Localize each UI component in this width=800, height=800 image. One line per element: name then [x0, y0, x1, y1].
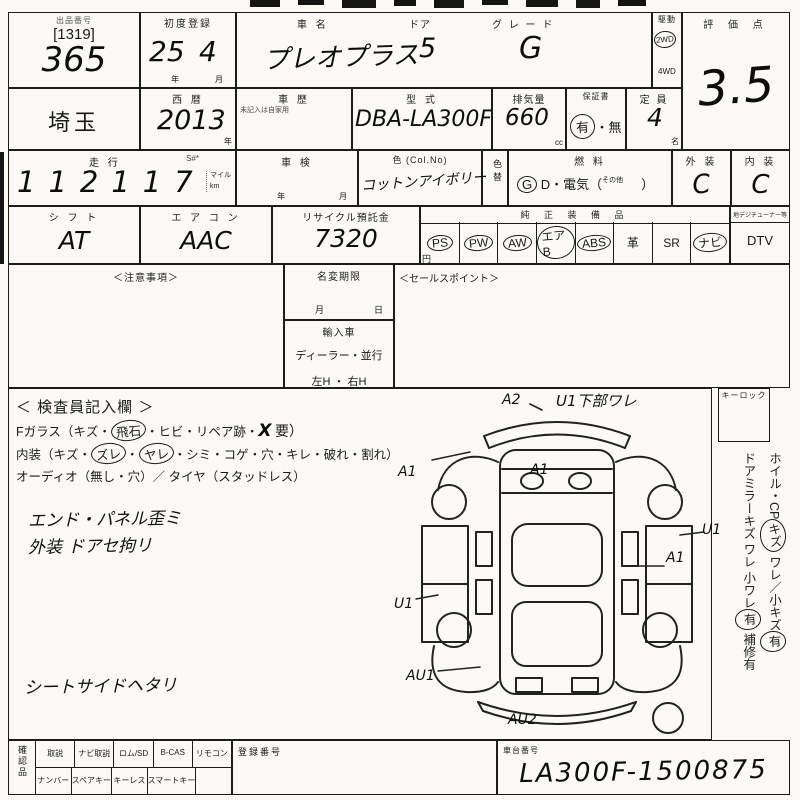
- caution-box: ＜注意事項＞: [8, 264, 284, 388]
- car-body: [500, 450, 614, 694]
- aircon-label: エ ア コ ン: [141, 209, 271, 224]
- annotation-au2-rear: AU2: [508, 712, 537, 728]
- dtv-header: 地デジチューナー等: [731, 210, 789, 219]
- year-label: 西 暦: [141, 91, 235, 106]
- drive-4wd: 4WD: [658, 67, 676, 76]
- drive-box: 駆動 2WD 4WD: [652, 12, 682, 88]
- first-registration-box: 初度登録 25 4 年 月: [140, 12, 236, 88]
- fglass-p2: ・ヒビ・リペア跡・: [146, 425, 259, 439]
- displacement-value: 660: [505, 105, 549, 131]
- capacity-box: 定 員 4 名: [626, 88, 682, 150]
- aircon-box: エ ア コ ン AAC: [140, 206, 272, 264]
- door-value: 5: [419, 33, 436, 64]
- side-circled-ari2: 有: [734, 608, 761, 631]
- grade-label: グ レ ー ド: [492, 16, 554, 31]
- name-change-box: 名変期限 月 日: [284, 264, 394, 320]
- door-label: ドア: [409, 16, 431, 31]
- lot-box: 出品番号 [1319] 365: [8, 12, 140, 88]
- drive-label: 駆動: [653, 14, 681, 25]
- annotation-leader-lines: [416, 404, 704, 671]
- shaken-label: 車 検: [237, 154, 357, 169]
- warranty-label: 保証書: [567, 91, 625, 102]
- displacement-box: 排気量 660 cc: [492, 88, 566, 150]
- equipment-cell-aw: AW: [497, 222, 536, 263]
- side-p4: 補修有: [741, 629, 755, 670]
- side-circled-ari1: 有: [759, 630, 786, 653]
- dtv-value: DTV: [731, 233, 789, 248]
- car-name-box: 車 名 ドア グ レ ー ド プレオプラス 5 G: [236, 12, 652, 88]
- fuel-label: 燃 料: [509, 153, 671, 168]
- wheel-note-line: ホイル・CPキズ ワレ／小キズ有: [760, 452, 786, 740]
- confirm-empty: [195, 768, 231, 795]
- year-value: 2013: [157, 105, 226, 136]
- equipment-abs: ABS: [577, 233, 612, 252]
- shaken-year-unit: 年: [277, 191, 285, 202]
- equipment-ps: PS: [426, 233, 453, 251]
- exterior-label: 外 装: [673, 153, 730, 168]
- history-box: 車 歴 未記入は自家用: [236, 88, 352, 150]
- mileage-units: マイル km: [206, 171, 231, 192]
- sales-point-box: ＜セールスポイント＞: [394, 264, 790, 388]
- keylock-label: キーロック: [719, 390, 769, 401]
- interior-circled-zure: ズレ: [90, 442, 127, 466]
- color-value: コットンアイボリー: [360, 167, 486, 196]
- car-name-label: 車 名: [297, 16, 329, 31]
- interior-p3: ・シミ・コゲ・穴・キレ・破れ・割れ）: [174, 448, 399, 462]
- mileage-unit-mile: マイル: [210, 172, 231, 179]
- region-value: 埼玉: [9, 105, 139, 137]
- drive-2wd: 2WD: [653, 30, 676, 49]
- confirm-bcas: B-CAS: [153, 741, 192, 767]
- annotation-a1-right-door: A1: [666, 550, 684, 566]
- region-box: 埼玉: [8, 88, 140, 150]
- annotation-a2-front: A2: [502, 392, 520, 408]
- import-type: ディーラー・並行: [285, 347, 393, 363]
- capacity-unit: 名: [671, 136, 679, 147]
- equipment-aw: AW: [502, 233, 532, 251]
- shift-value: AT: [9, 226, 139, 255]
- side-circled-kizu: キズ: [759, 518, 788, 553]
- displacement-unit: cc: [555, 138, 563, 147]
- right-side-panels: [616, 457, 692, 692]
- equipment-navi: ナビ: [692, 232, 728, 254]
- warranty-box: 保証書 有・無: [566, 88, 626, 150]
- annotation-a1-left-fender: A1: [398, 464, 416, 480]
- score-label: 評 価 点: [683, 16, 789, 31]
- equipment-cell-pw: PW: [459, 222, 498, 263]
- recycle-box: リサイクル預託金 7320 円: [272, 206, 420, 264]
- shaken-month-unit: 月: [339, 191, 347, 202]
- annotation-u1-crack: U1下部ワレ: [556, 390, 637, 411]
- lot-label: 出品番号: [9, 15, 139, 26]
- confirm-keyless: キーレス: [111, 768, 147, 795]
- scan-artifact: [0, 152, 4, 264]
- left-side-panels: [422, 457, 498, 692]
- history-label: 車 歴: [237, 91, 351, 106]
- name-change-day: 日: [374, 303, 383, 316]
- confirm-navi-torisetsu: ナビ取説: [74, 741, 113, 767]
- confirm-spare-key: スペアキー: [71, 768, 111, 795]
- model-box: 型 式 DBA-LA300F: [352, 88, 492, 150]
- keylock-box: キーロック: [718, 388, 770, 442]
- wheel-mirror-note: ホイル・CPキズ ワレ／小キズ有 ドアミラーキズ ワレ 小ワレ有 補修有: [722, 452, 786, 740]
- wheel-front-left: [432, 485, 466, 519]
- equipment-cell-sr: SR: [652, 222, 691, 263]
- name-change-label: 名変期限: [285, 268, 393, 283]
- shift-box: シ フ ト AT: [8, 206, 140, 264]
- equipment-airbag: エアB: [536, 224, 576, 260]
- fglass-x-mark: X: [258, 421, 271, 441]
- displacement-label: 排気量: [493, 91, 565, 106]
- exterior-box: 外 装 C: [672, 150, 731, 206]
- fglass-line: Fガラス（キズ・飛石・ヒビ・リペア跡・X 要）: [16, 420, 303, 441]
- handnote-end-panel: エンド・パネル歪ミ: [28, 504, 181, 532]
- hood-detail-right: [569, 473, 591, 489]
- color-label: 色 (Col.No): [359, 153, 481, 166]
- warranty-no: 無: [609, 120, 622, 135]
- score-box: 評 価 点 3.5: [682, 12, 790, 150]
- fuel-rest2: ）: [623, 177, 654, 192]
- lot-number: 365: [9, 43, 139, 77]
- audio-line: オーディオ（無し・穴）／ タイヤ（スタッドレス）: [16, 466, 306, 485]
- model-label: 型 式: [353, 91, 491, 106]
- import-handle: 左H ・ 右H: [285, 373, 393, 389]
- chassis-number-label: 車台番号: [503, 745, 539, 756]
- rear-bumper-inner: [483, 711, 631, 724]
- confirm-rom-sd: ロム/SD: [113, 741, 152, 767]
- mileage-box: 走 行 S#* 112117 マイル km: [8, 150, 236, 206]
- interior-line: 内装（キズ・ズレ・ヤレ・シミ・コゲ・穴・キレ・破れ・割れ）: [16, 443, 399, 464]
- equipment-cell-ps: PS: [421, 222, 459, 263]
- registration-number-box: 登録番号: [232, 740, 497, 795]
- mirror-note-line: ドアミラーキズ ワレ 小ワレ有 補修有: [735, 452, 761, 740]
- import-box: 輸入車 ディーラー・並行 左H ・ 右H: [284, 320, 394, 388]
- shaken-box: 車 検 年 月: [236, 150, 358, 206]
- cutoff-title-marks: [250, 0, 670, 10]
- fglass-p1: Fガラス（キズ・: [16, 425, 111, 439]
- first-reg-month: 4: [199, 35, 217, 68]
- warranty-yes: 有: [569, 113, 596, 140]
- rear-bumper-outer: [478, 702, 636, 716]
- interior-circled-yare: ヤレ: [138, 442, 175, 466]
- fglass-circled-tobiishi: 飛石: [110, 419, 147, 443]
- registration-number-label: 登録番号: [238, 745, 282, 758]
- fglass-p3: 要）: [275, 423, 303, 439]
- chassis-number-value: LA300F-1500875: [498, 754, 789, 789]
- grade-value: G: [519, 31, 542, 66]
- chassis-number-box: 車台番号 LA300F-1500875: [497, 740, 790, 795]
- inspector-title: ＜ 検査員記入欄 ＞: [16, 396, 154, 417]
- equipment-sr: SR: [663, 236, 680, 250]
- equipment-cell-abs: ABS: [575, 222, 614, 263]
- first-registration-label: 初度登録: [141, 15, 235, 30]
- tail-light-right: [572, 678, 598, 692]
- capacity-value: 4: [647, 103, 663, 132]
- confirm-torisetsu: 取説: [36, 741, 74, 767]
- side-p2: ワレ／小キズ: [767, 552, 781, 630]
- mileage-s-label: S#*: [186, 154, 199, 163]
- inspection-stamp-circle: [653, 703, 683, 733]
- equipment-leather: 革: [627, 234, 639, 251]
- equipment-label: 純 正 装 備 品: [421, 208, 729, 221]
- confirm-smart-key: スマートキー: [147, 768, 196, 795]
- fuel-rest1: D・電気（: [541, 177, 602, 192]
- warranty-sep: ・: [595, 120, 608, 135]
- confirm-items-box: 確認品 取説 ナビ取説 ロム/SD B-CAS リモコン ナンバー スペアキー …: [8, 740, 232, 795]
- model-value: DBA-LA300F: [355, 107, 492, 132]
- color-change-box: 色替: [482, 150, 508, 206]
- interior-box: 内 装 C: [731, 150, 790, 206]
- interior-p1: 内装（キズ・: [16, 448, 91, 462]
- equipment-box: 純 正 装 備 品 PS PW AW エアB ABS 革 SR ナビ: [420, 206, 730, 264]
- shift-label: シ フ ト: [9, 209, 139, 224]
- caution-label: ＜注意事項＞: [9, 269, 283, 284]
- windshield: [512, 524, 602, 586]
- equipment-cell-airbag: エアB: [536, 222, 575, 263]
- rear-window: [512, 602, 602, 666]
- annotation-u1-right: U1: [702, 522, 721, 538]
- side-p1: ホイル・CP: [767, 452, 781, 519]
- wheel-front-right: [648, 485, 682, 519]
- recycle-value: 7320: [273, 224, 419, 253]
- sales-point-label: ＜セールスポイント＞: [399, 270, 499, 285]
- exterior-value: C: [672, 167, 732, 203]
- aircon-value: AAC: [141, 226, 271, 255]
- first-reg-year: 25: [149, 35, 185, 68]
- interior-label: 内 装: [732, 153, 789, 168]
- interior-value: C: [732, 170, 789, 200]
- confirm-number-plate: ナンバー: [36, 768, 71, 795]
- score-value: 3.5: [681, 55, 791, 118]
- front-bumper-inner: [489, 435, 625, 449]
- confirm-label: 確認品: [16, 745, 29, 778]
- color-box: 色 (Col.No) コットンアイボリー: [358, 150, 482, 206]
- year-unit: 年: [224, 136, 232, 147]
- mileage-value: 112117: [17, 165, 206, 199]
- confirm-remocon: リモコン: [192, 741, 231, 767]
- equipment-cell-leather: 革: [613, 222, 652, 263]
- history-note: 未記入は自家用: [240, 105, 289, 115]
- tail-light-left: [516, 678, 542, 692]
- year-box: 西 暦 2013 年: [140, 88, 236, 150]
- annotation-u1-left-door: U1: [394, 596, 413, 612]
- interior-p2: ・: [126, 448, 139, 462]
- recycle-label: リサイクル預託金: [273, 209, 419, 224]
- first-reg-month-unit: 月: [215, 74, 223, 85]
- fuel-gas: G: [516, 175, 538, 194]
- dtv-box: 地デジチューナー等 DTV: [730, 206, 790, 264]
- annotation-au1-left-quarter: AU1: [406, 668, 435, 684]
- handnote-exterior-door: 外装 ドアセ拘リ: [28, 531, 152, 558]
- car-name-value: プレオプラス: [262, 34, 419, 76]
- fuel-other: その他: [602, 177, 623, 184]
- fuel-box: 燃 料 G D・電気（その他）: [508, 150, 672, 206]
- color-change-label: 色替: [491, 159, 504, 185]
- equipment-pw: PW: [463, 233, 494, 251]
- side-p3: ドアミラーキズ ワレ 小ワレ: [741, 452, 755, 609]
- first-reg-year-unit: 年: [171, 74, 179, 85]
- name-change-month: 月: [315, 303, 324, 316]
- annotation-a1-hood: A1: [530, 462, 548, 478]
- handnote-seat-side: シートサイドヘタリ: [24, 671, 177, 699]
- mileage-unit-km: km: [210, 183, 219, 190]
- import-label: 輸入車: [285, 324, 393, 339]
- equipment-cell-navi: ナビ: [690, 222, 729, 263]
